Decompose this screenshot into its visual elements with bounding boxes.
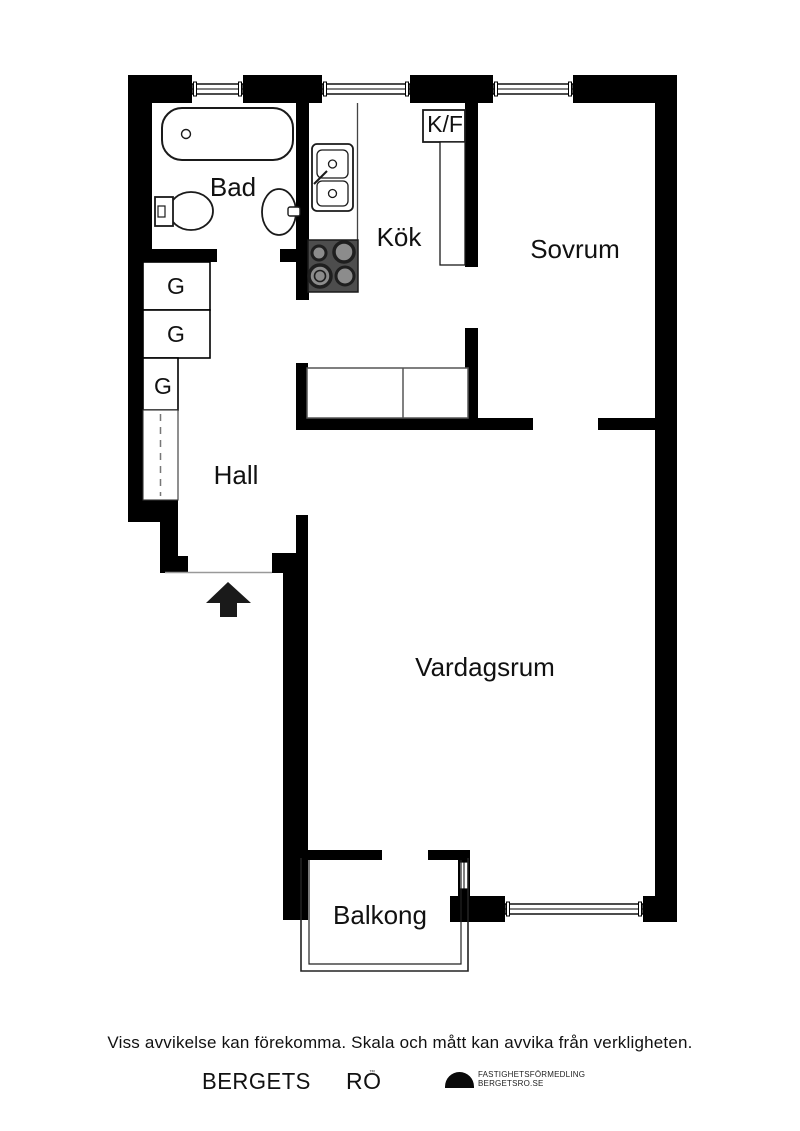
stove-burner-1	[312, 246, 326, 260]
entry-step-foot	[160, 556, 188, 573]
window-bedroom	[493, 75, 573, 103]
label-closet-3: G	[154, 373, 172, 399]
label-living-room: Vardagsrum	[415, 652, 555, 682]
window-kitchen	[322, 75, 410, 103]
agency-text: FASTIGHETSFÖRMEDLING BERGETSRO.SE	[478, 1070, 585, 1088]
stove-burner-3	[309, 265, 331, 287]
window-livingroom	[505, 896, 643, 922]
toilet-button	[158, 206, 165, 217]
sink-drain-bottom	[329, 190, 337, 198]
wall-left-upper	[128, 75, 152, 262]
hall-livingroom-pier	[296, 515, 308, 573]
entry-step-top	[128, 500, 178, 522]
stove-burner-4	[336, 267, 354, 285]
window-bathroom	[192, 75, 243, 103]
entrance-arrow-stem	[220, 603, 237, 617]
wall-left-lower	[128, 248, 143, 522]
trademark-mark: ™	[369, 1070, 375, 1076]
label-kitchen: Kök	[377, 222, 423, 252]
windows	[192, 75, 643, 922]
balcony-wall-left	[307, 850, 382, 860]
kitchen-bedroom-wall-upper	[465, 103, 478, 267]
wall-bottom-left	[450, 896, 505, 922]
agency-line2: BERGETSRO.SE	[478, 1079, 585, 1088]
label-bathroom: Bad	[210, 172, 256, 202]
agency-line1: FASTIGHETSFÖRMEDLING	[478, 1070, 585, 1079]
brand-ro: RO	[346, 1068, 382, 1095]
washbasin-faucet	[288, 207, 300, 216]
wall-right	[655, 75, 677, 922]
entrance-arrow-icon	[206, 582, 251, 603]
brand-bergets: BERGETS	[202, 1068, 311, 1095]
label-bedroom: Sovrum	[530, 234, 620, 264]
label-closet-1: G	[167, 273, 185, 299]
kitchen-livingroom-wall	[298, 418, 533, 430]
sink-drain-top	[329, 160, 337, 168]
wall-livingroom-left	[283, 573, 308, 920]
entrance	[165, 573, 272, 618]
label-hall: Hall	[214, 460, 259, 490]
label-fridge-freezer: K/F	[427, 111, 463, 137]
toilet-bowl	[169, 192, 213, 230]
entry-right-pier	[272, 553, 297, 573]
kitchen-fixtures	[307, 103, 468, 418]
stove-burner-2	[334, 242, 354, 262]
bathroom-wall-south-left	[143, 249, 217, 262]
bathtub-drain	[182, 130, 191, 139]
disclaimer-text: Viss avvikelse kan förekomma. Skala och …	[0, 1033, 800, 1053]
entry-step-side	[160, 522, 178, 556]
bench-counter	[307, 368, 468, 418]
bedroom-livingroom-wall	[598, 418, 677, 430]
label-closet-2: G	[167, 321, 185, 347]
bathroom-kitchen-wall	[296, 103, 309, 300]
floor-plan-drawing: Bad Kök Sovrum Hall Vardagsrum Balkong K…	[0, 0, 800, 1131]
wall-bottom-right	[643, 896, 677, 922]
floor-plan-page: Bad Kök Sovrum Hall Vardagsrum Balkong K…	[0, 0, 800, 1131]
label-balcony: Balkong	[333, 900, 427, 930]
fridge-freezer-cabinet	[440, 142, 465, 265]
